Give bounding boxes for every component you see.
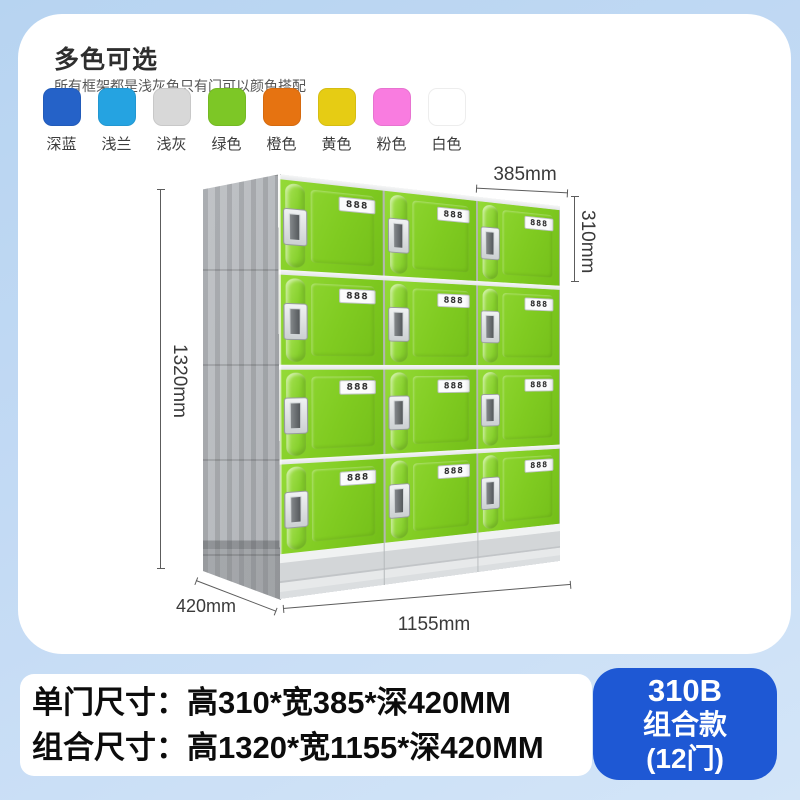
- locker-door: 888: [280, 275, 383, 365]
- door-handle: [284, 397, 308, 434]
- locker-door: 888: [478, 201, 559, 286]
- locker-cell: 888: [477, 365, 560, 449]
- model-name: 组合款: [593, 708, 777, 742]
- door-handle: [388, 395, 410, 430]
- locker-door: 888: [385, 370, 476, 454]
- locker-cell: 888: [477, 281, 560, 365]
- single-door-size: 单门尺寸：高310*宽385*深420MM: [32, 680, 592, 725]
- door-handle: [481, 394, 500, 427]
- door-lock-display: 888: [339, 288, 376, 304]
- door-handle: [481, 476, 500, 510]
- combined-size: 组合尺寸：高1320*宽1155*深420MM: [32, 725, 592, 770]
- locker-door: 888: [280, 370, 383, 460]
- door-handle: [283, 303, 307, 340]
- locker-cell: 888: [384, 449, 477, 543]
- door-handle: [388, 307, 410, 342]
- dim-depth: 420mm: [172, 596, 240, 617]
- dim-total-height: 1320mm: [168, 344, 190, 418]
- door-lock-display: 888: [524, 297, 553, 311]
- locker-cell: 888: [477, 445, 560, 533]
- locker-cell: 888: [384, 186, 477, 281]
- locker-cell: 888: [279, 454, 384, 554]
- door-lock-display: 888: [339, 196, 376, 214]
- locker-door: 888: [478, 449, 559, 533]
- door-lock-display: 888: [524, 216, 553, 232]
- locker-door: 888: [385, 453, 476, 542]
- door-lock-display: 888: [437, 293, 469, 308]
- door-handle: [284, 490, 308, 529]
- door-lock-display: 888: [525, 379, 554, 392]
- dim-line-total-height: [160, 189, 161, 569]
- door-lock-display: 888: [438, 464, 470, 480]
- locker-cell: 888: [278, 270, 384, 365]
- product-card: 多色可选 所有框架都是浅灰色只有门可以颜色搭配 深蓝浅兰浅灰绿色橙色黄色粉色白色…: [18, 14, 791, 654]
- size-summary: 单门尺寸：高310*宽385*深420MM 组合尺寸：高1320*宽1155*深…: [20, 674, 592, 776]
- model-badge: 310B 组合款 (12门): [593, 668, 777, 780]
- locker-cell: 888: [384, 276, 477, 365]
- locker-illustration: 888888888888888888888888888888888888 385…: [18, 14, 791, 654]
- door-lock-display: 888: [437, 207, 469, 224]
- locker-door: 888: [385, 280, 476, 365]
- door-lock-display: 888: [339, 380, 376, 395]
- dim-line-door-width: [476, 188, 568, 194]
- door-lock-display: 888: [437, 379, 469, 393]
- door-handle: [481, 310, 500, 343]
- dim-door-height: 310mm: [576, 210, 598, 273]
- locker-side-panel: [203, 174, 281, 600]
- locker-front: 888888888888888888888888888888888888: [278, 174, 560, 599]
- locker-door: 888: [478, 285, 559, 365]
- model-door-count: (12门): [593, 742, 777, 776]
- dim-line-door-height: [574, 196, 575, 282]
- locker-cell: 888: [279, 365, 385, 460]
- locker-door: 888: [478, 369, 559, 449]
- door-handle: [389, 483, 410, 519]
- locker-door: 888: [385, 191, 476, 281]
- door-lock-display: 888: [525, 458, 554, 473]
- door-handle: [481, 226, 500, 260]
- door-handle: [283, 208, 308, 247]
- dim-door-width: 385mm: [470, 164, 580, 186]
- dim-total-width: 1155mm: [375, 614, 493, 636]
- locker-door: 888: [279, 179, 383, 275]
- locker-door: 888: [281, 459, 384, 554]
- model-number: 310B: [593, 673, 777, 708]
- locker-cell: 888: [384, 365, 477, 454]
- locker-door-grid: 888888888888888888888888888888888888: [278, 174, 560, 554]
- door-handle: [388, 218, 410, 254]
- door-lock-display: 888: [340, 470, 377, 487]
- locker-cell: 888: [278, 174, 384, 276]
- locker-cell: 888: [477, 197, 560, 286]
